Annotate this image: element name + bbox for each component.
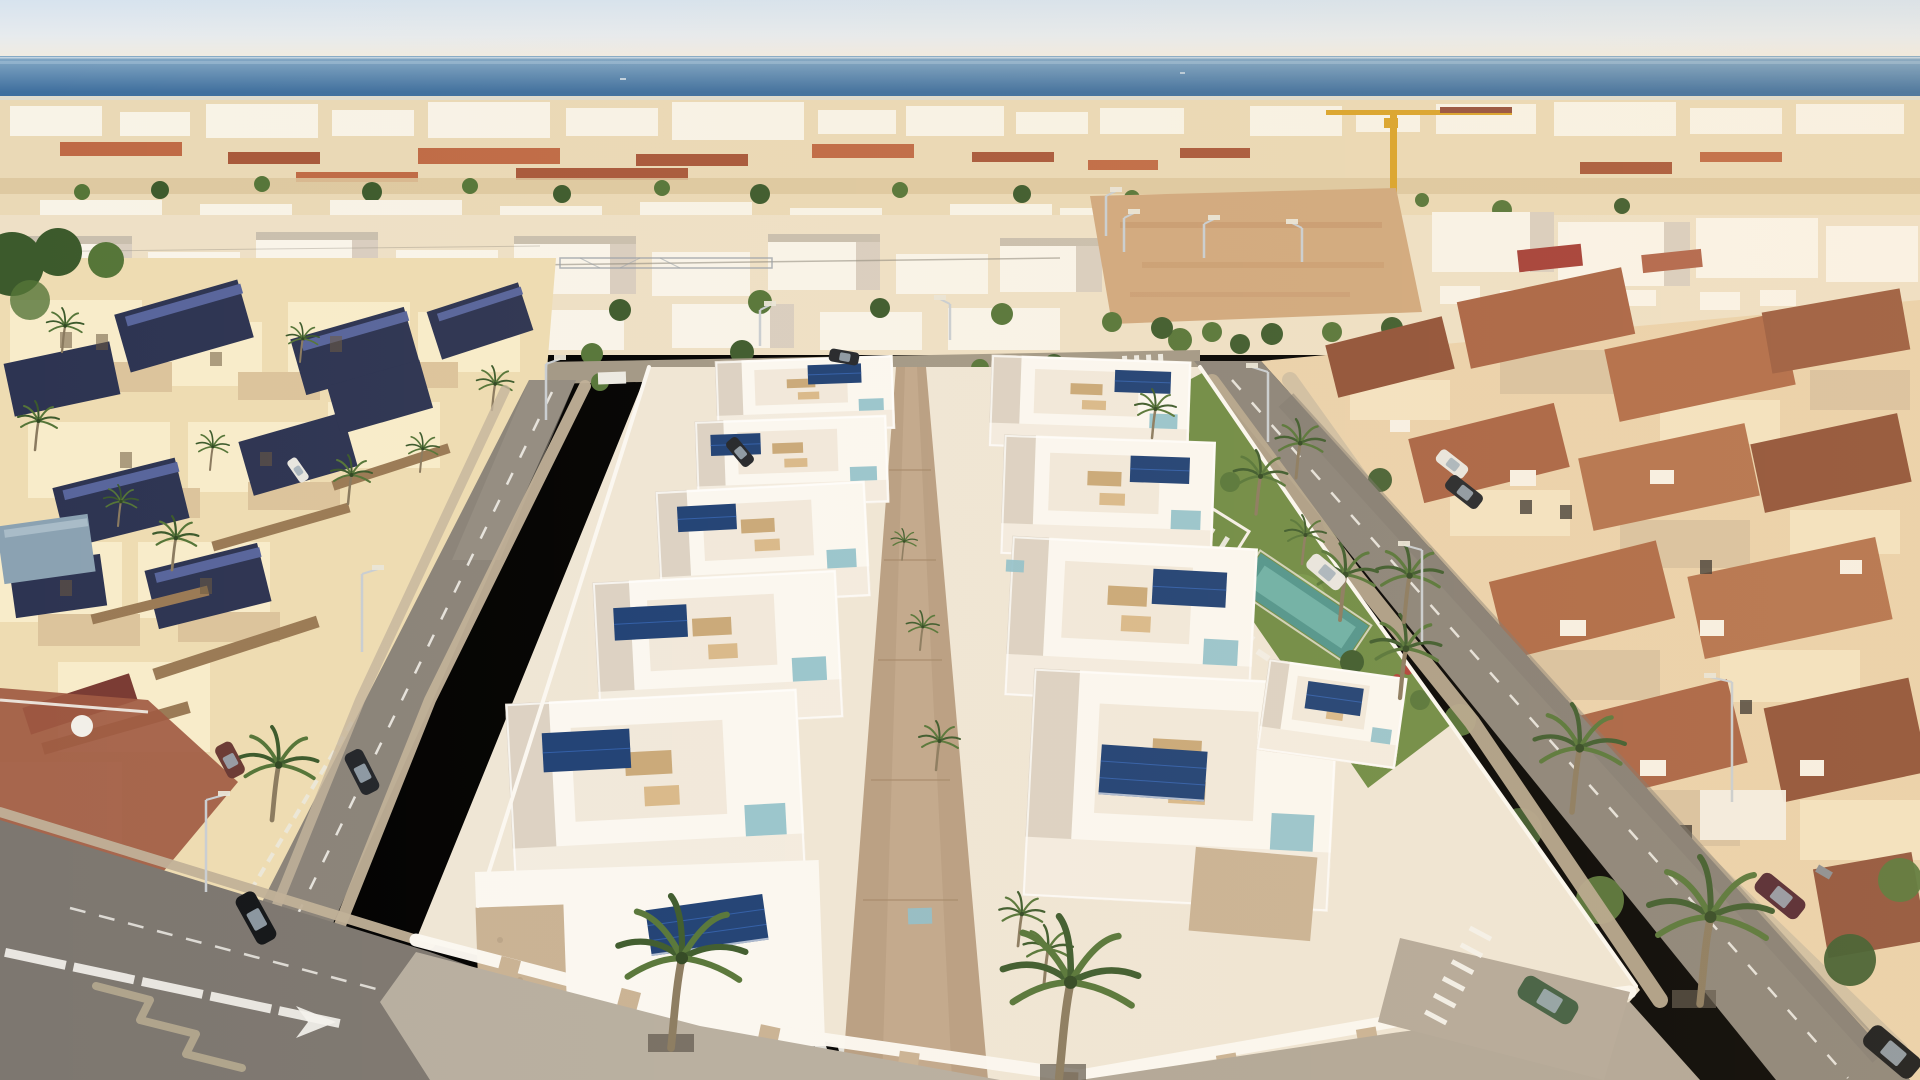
left-district-circ bbox=[88, 242, 124, 278]
far-town-rect bbox=[636, 154, 748, 166]
mid-town-rect bbox=[1120, 222, 1382, 228]
mid-town-rect bbox=[514, 236, 636, 244]
glass-balustrade bbox=[908, 908, 933, 925]
far-town-rect bbox=[120, 112, 190, 136]
mid-town-circ bbox=[1202, 322, 1222, 342]
far-town-rect bbox=[1796, 104, 1904, 134]
mid-town-rect bbox=[1130, 292, 1350, 297]
mid-town-rect bbox=[1700, 292, 1740, 310]
villa bbox=[1256, 659, 1407, 770]
dormer bbox=[1700, 620, 1724, 636]
far-town-circ bbox=[462, 178, 478, 194]
window bbox=[1740, 700, 1752, 714]
dormer bbox=[1640, 760, 1666, 776]
right-district-circ bbox=[1878, 858, 1920, 902]
far-town-rect bbox=[1580, 162, 1672, 174]
window bbox=[330, 336, 342, 352]
vacant-dirt-lot bbox=[1090, 188, 1422, 324]
far-town-rect bbox=[1700, 152, 1782, 162]
far-town-circ bbox=[74, 184, 90, 200]
mid-town-rect bbox=[770, 304, 794, 348]
sky bbox=[0, 0, 1920, 60]
far-town-rect bbox=[672, 102, 804, 140]
patio-parasol bbox=[71, 715, 93, 737]
far-town-rect bbox=[812, 144, 914, 158]
mid-town-rect bbox=[1826, 226, 1918, 282]
dormer bbox=[1800, 760, 1824, 776]
mid-town-rect bbox=[1696, 218, 1818, 278]
far-town-circ bbox=[362, 182, 382, 202]
window bbox=[1700, 560, 1712, 574]
mid-town-rect bbox=[820, 312, 922, 350]
dormer bbox=[1650, 470, 1674, 484]
boat bbox=[620, 78, 626, 80]
mid-town-rect bbox=[768, 234, 880, 242]
far-town-rect bbox=[428, 102, 550, 138]
mid-town-circ bbox=[1102, 312, 1122, 332]
dormer bbox=[1390, 420, 1410, 432]
stone-clad-wall bbox=[1189, 847, 1318, 941]
far-town-rect bbox=[906, 106, 1004, 136]
far-town-rect bbox=[60, 142, 182, 156]
window bbox=[120, 452, 132, 468]
far-town-rect bbox=[0, 178, 1920, 194]
scene-svg bbox=[0, 0, 1920, 1080]
mid-town-rect bbox=[1760, 290, 1796, 306]
window bbox=[1520, 500, 1532, 514]
window bbox=[60, 580, 72, 596]
development-circ bbox=[1220, 472, 1240, 492]
mid-town-circ bbox=[1151, 317, 1173, 339]
far-town-rect bbox=[206, 104, 318, 138]
mid-town-circ bbox=[870, 298, 890, 318]
far-town-rect bbox=[418, 148, 560, 164]
window bbox=[210, 352, 222, 366]
aerial-photo-stage bbox=[0, 0, 1920, 1080]
window bbox=[96, 334, 108, 350]
scene-root bbox=[0, 57, 1920, 1080]
mid-town-circ bbox=[1261, 323, 1283, 345]
far-town-circ bbox=[151, 181, 169, 199]
far-town-circ bbox=[750, 184, 770, 204]
far-town-rect bbox=[1100, 108, 1184, 134]
left-district-rect bbox=[38, 614, 140, 646]
glass-balustrade bbox=[1006, 560, 1025, 573]
far-town-rect bbox=[818, 110, 896, 134]
mid-town-rect bbox=[256, 232, 378, 240]
mid-town-rect bbox=[1142, 262, 1384, 268]
far-town-rect bbox=[566, 108, 658, 136]
far-town-rect bbox=[332, 110, 414, 136]
mid-town-circ bbox=[991, 303, 1013, 325]
dormer bbox=[1510, 470, 1536, 486]
mid-town-circ bbox=[1230, 334, 1250, 354]
window bbox=[1560, 505, 1572, 519]
palm-planter bbox=[1672, 990, 1716, 1008]
left-district-circ bbox=[34, 228, 82, 276]
far-town-rect bbox=[1690, 108, 1782, 134]
tower-crane-cab bbox=[1384, 118, 1398, 128]
left-district-circ bbox=[10, 280, 50, 320]
far-town-circ bbox=[553, 185, 571, 203]
far-town-rect bbox=[228, 152, 320, 164]
boat bbox=[1180, 72, 1185, 74]
far-town-circ bbox=[1614, 198, 1630, 214]
far-town-circ bbox=[654, 180, 670, 196]
mid-town-circ bbox=[609, 299, 631, 321]
far-town-circ bbox=[892, 182, 908, 198]
dormer bbox=[1840, 560, 1862, 574]
white-pergola bbox=[1700, 790, 1786, 840]
far-town-circ bbox=[1415, 193, 1429, 207]
right-district-rect bbox=[1800, 800, 1920, 860]
far-town-rect bbox=[1088, 160, 1158, 170]
mid-town-circ bbox=[1322, 322, 1342, 342]
tower-crane-counterjib bbox=[1440, 107, 1512, 113]
window bbox=[260, 452, 272, 466]
solar-panel bbox=[1098, 744, 1207, 801]
development-circ bbox=[497, 937, 503, 943]
dormer bbox=[1560, 620, 1586, 636]
far-town-rect bbox=[1180, 148, 1250, 158]
far-town-rect bbox=[972, 152, 1054, 162]
far-town-rect bbox=[10, 106, 102, 136]
mid-town-rect bbox=[1000, 238, 1102, 246]
mid-town-rect bbox=[1076, 244, 1102, 292]
sea-streak bbox=[0, 61, 1920, 64]
horizon-line bbox=[0, 57, 1920, 59]
parked-van bbox=[598, 372, 626, 385]
window bbox=[200, 578, 212, 594]
far-town-circ bbox=[1013, 185, 1031, 203]
far-town-rect bbox=[1016, 112, 1088, 134]
right-district-circ bbox=[1824, 934, 1876, 986]
far-town-circ bbox=[254, 176, 270, 192]
mid-town-rect bbox=[856, 240, 880, 290]
right-district-rect bbox=[1810, 370, 1910, 410]
far-town-rect bbox=[1554, 102, 1676, 136]
